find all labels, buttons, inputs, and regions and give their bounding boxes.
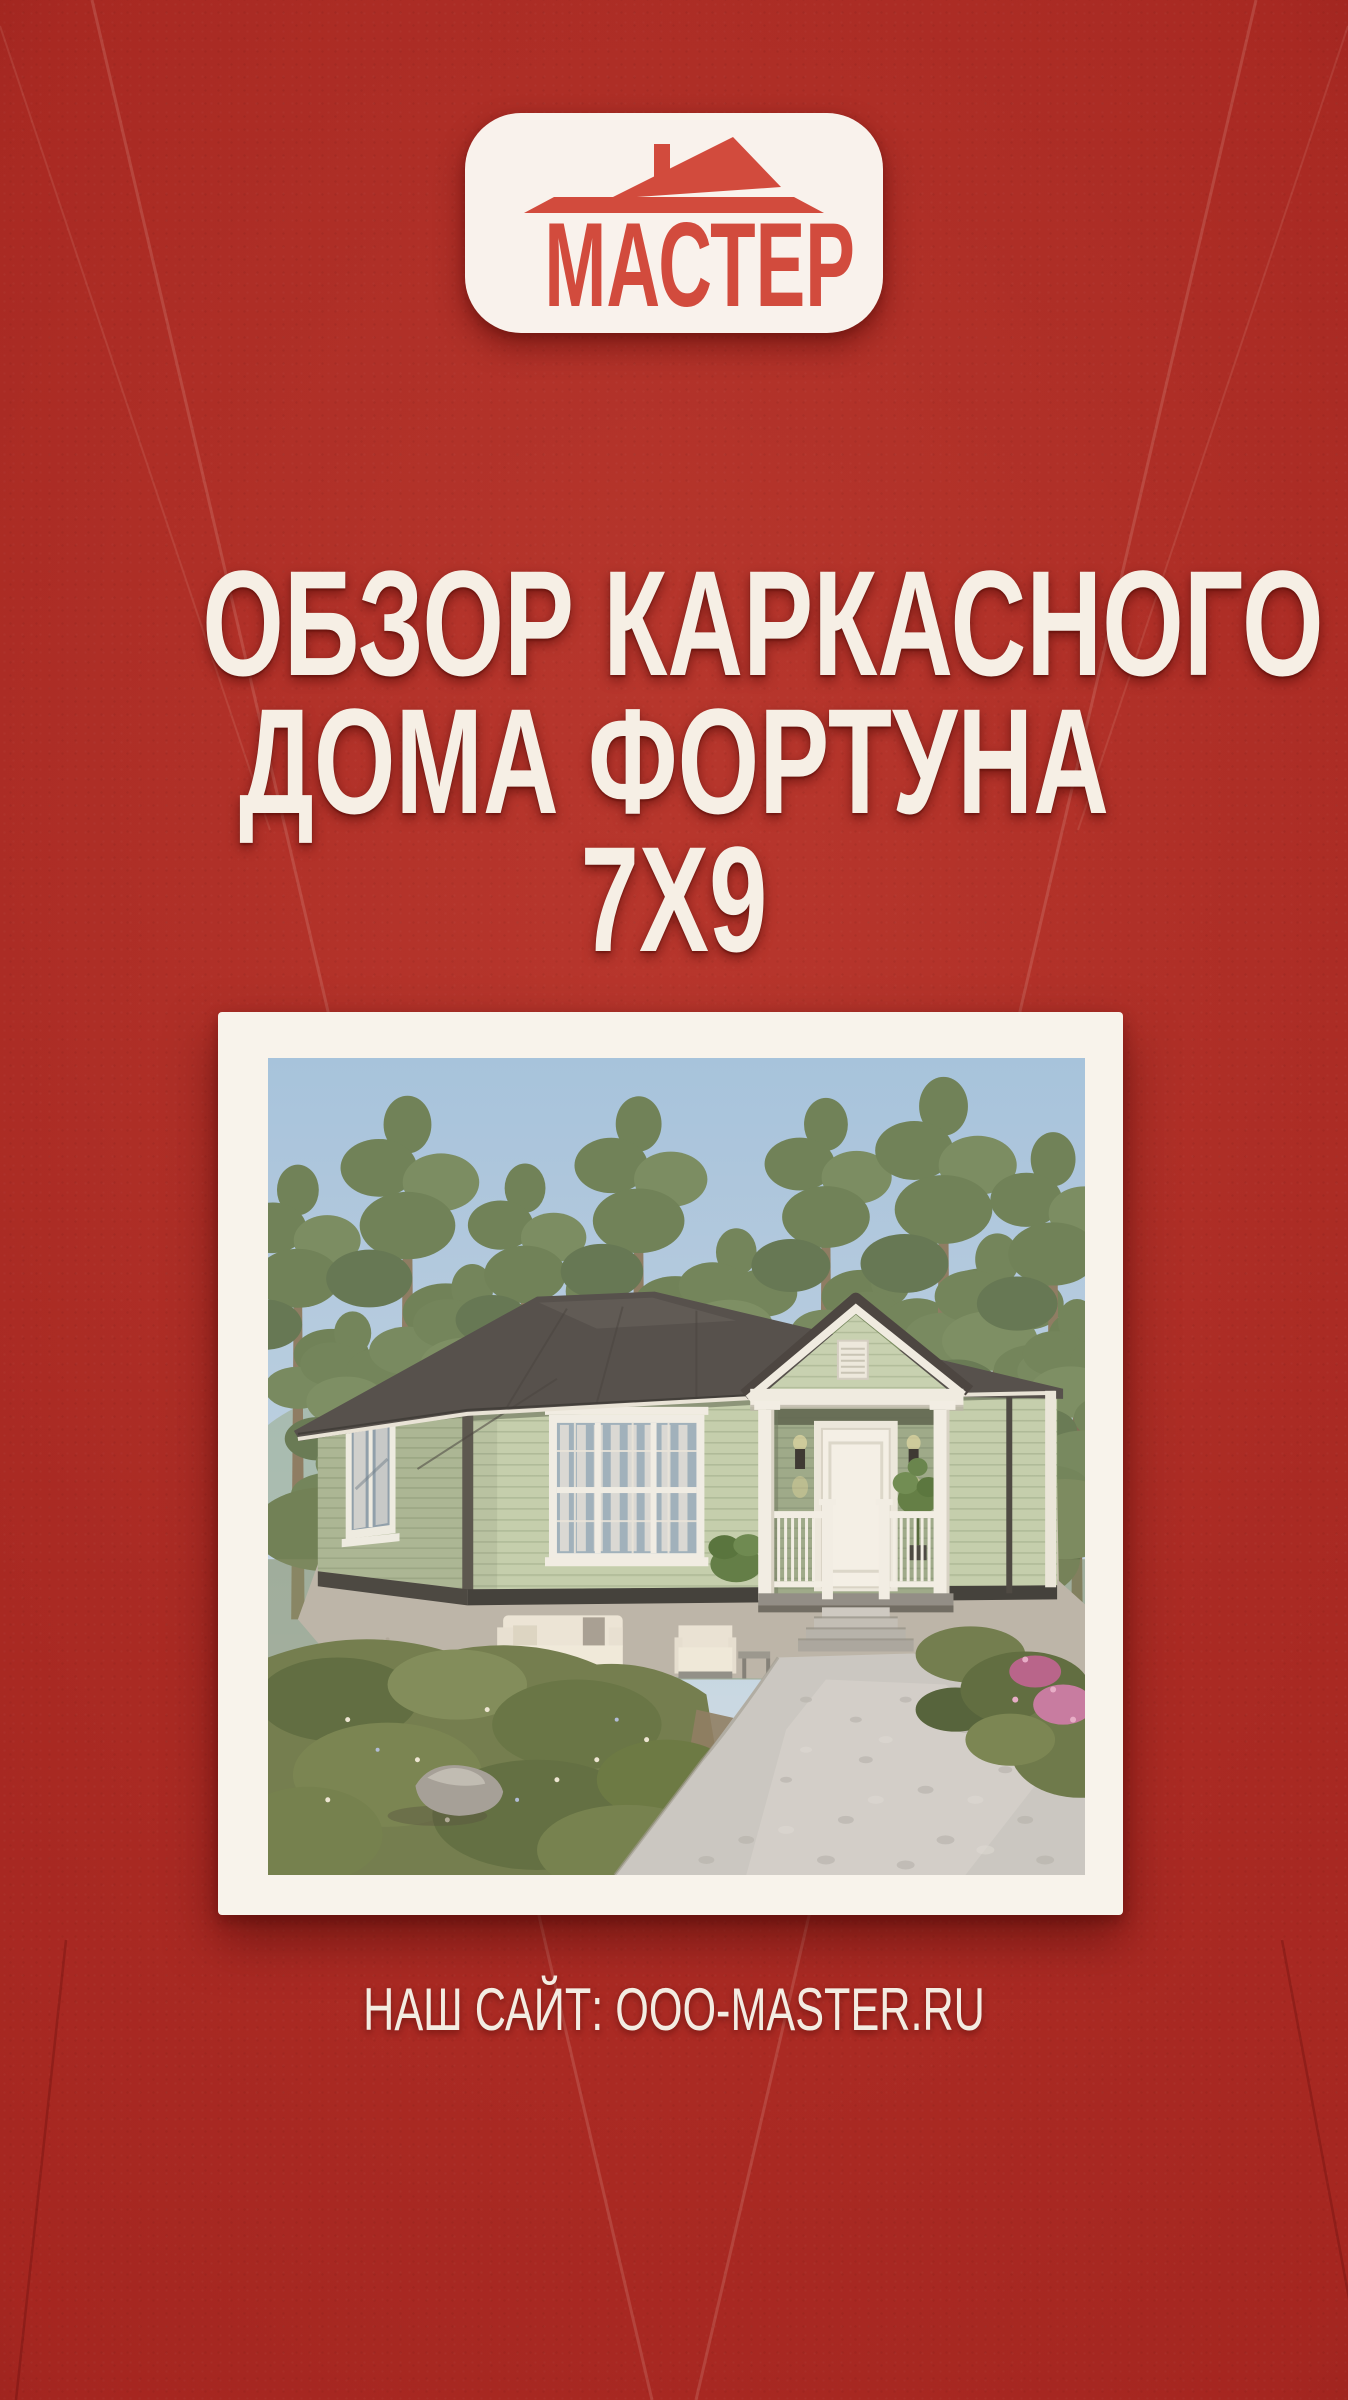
poster-title: ОБЗОР КАРКАСНОГО ДОМА ФОРТУНА 7Х9 [0, 554, 1348, 968]
title-line-3: 7Х9 [202, 830, 1146, 968]
brand-logo-card: МАСТЕР [465, 113, 883, 333]
promo-poster: МАСТЕР ОБЗОР КАРКАСНОГО ДОМА ФОРТУНА 7Х9 [0, 0, 1348, 2400]
site-url-text: НАШ САЙТ: OOO-MASTER.RU [189, 1974, 1160, 2046]
house-photo [268, 1058, 1085, 1875]
title-line-2: ДОМА ФОРТУНА [202, 692, 1146, 830]
title-line-1: ОБЗОР КАРКАСНОГО [202, 554, 1146, 692]
house-photo-frame [218, 1012, 1123, 1915]
brand-name: МАСТЕР [544, 205, 803, 325]
